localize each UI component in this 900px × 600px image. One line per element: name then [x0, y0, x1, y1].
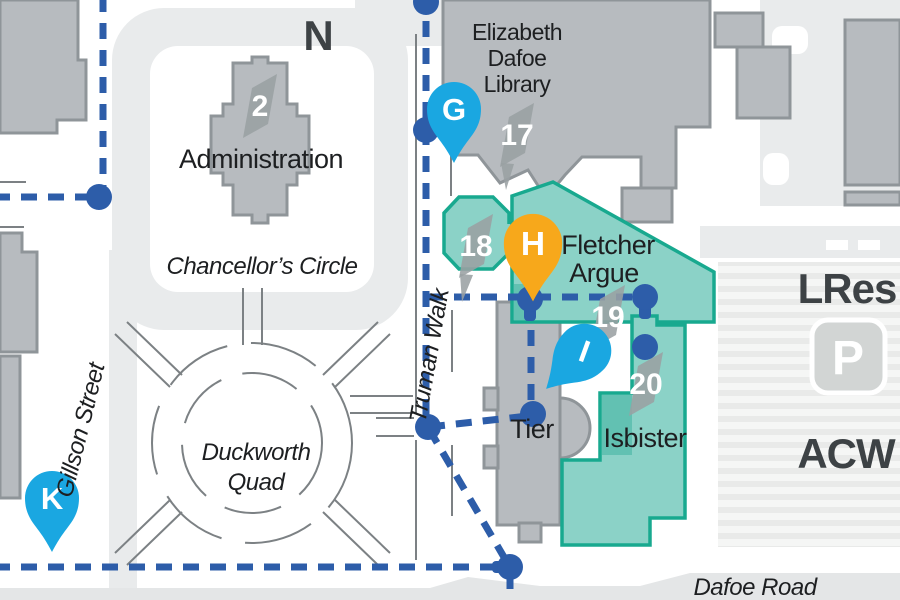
quad-label-2: Quad — [228, 469, 286, 496]
chancellors-circle-label: Chancellor’s Circle — [166, 253, 357, 280]
road-notch — [763, 153, 789, 185]
pin-G-letter: G — [442, 92, 466, 127]
route-dot — [86, 184, 112, 210]
route-dot — [632, 334, 658, 360]
marker-2-label: 2 — [252, 90, 269, 123]
road-dash — [826, 240, 848, 250]
route-dot — [497, 554, 523, 580]
pin-H-letter: H — [521, 226, 545, 263]
quad-spoke-ne — [323, 322, 390, 387]
administration-label: Administration — [179, 144, 343, 174]
library-label-3: Library — [484, 71, 552, 97]
parking-icon-letter: P — [832, 332, 864, 385]
marker-20-label: 20 — [629, 368, 662, 401]
gillson-street-road — [109, 250, 137, 600]
fletcher-label-2: Argue — [569, 258, 639, 288]
building-northwest — [0, 0, 86, 133]
quad-label-1: Duckworth — [202, 439, 311, 466]
road-dash — [858, 240, 880, 250]
truman-walk-label: Truman Walk — [405, 284, 455, 424]
dafoe-road-label: Dafoe Road — [693, 574, 817, 600]
lres-label: LRes — [798, 265, 897, 312]
fletcher-label-1: Fletcher — [561, 230, 655, 260]
tier-west-tab — [484, 446, 498, 468]
building-west-low — [0, 356, 20, 498]
tier-west-tab — [484, 388, 498, 410]
north-indicator: N — [303, 12, 332, 59]
isbister-label: Isbister — [603, 423, 687, 453]
marker-18-label: 18 — [459, 230, 492, 263]
building-east-thin — [845, 192, 900, 205]
west-street-marks — [0, 182, 26, 227]
parking-icon[interactable]: P — [812, 320, 885, 393]
gillson-street-label: Gillson Street — [51, 359, 111, 500]
building-west-mid — [0, 233, 37, 352]
quad-spoke-e — [350, 396, 413, 413]
tier-south-nub — [519, 523, 541, 542]
building-east-tall — [845, 20, 900, 185]
tier-label: Tier — [510, 414, 554, 444]
acw-label: ACW — [797, 430, 896, 477]
library-label-1: Elizabeth — [472, 19, 562, 45]
building-block-small — [622, 188, 672, 222]
marker-17-label: 17 — [500, 119, 533, 152]
building-ne-block1 — [715, 13, 763, 47]
quad-spoke-se — [323, 500, 390, 565]
campus-map: { "map": { "region_labels": { "north_ind… — [0, 0, 900, 600]
building-ne-block2 — [737, 47, 790, 118]
library-label-2: Dafoe — [488, 45, 547, 71]
map-canvas: 2 17 18 19 20 G H I K P N Elizabeth Dafo… — [0, 0, 900, 600]
